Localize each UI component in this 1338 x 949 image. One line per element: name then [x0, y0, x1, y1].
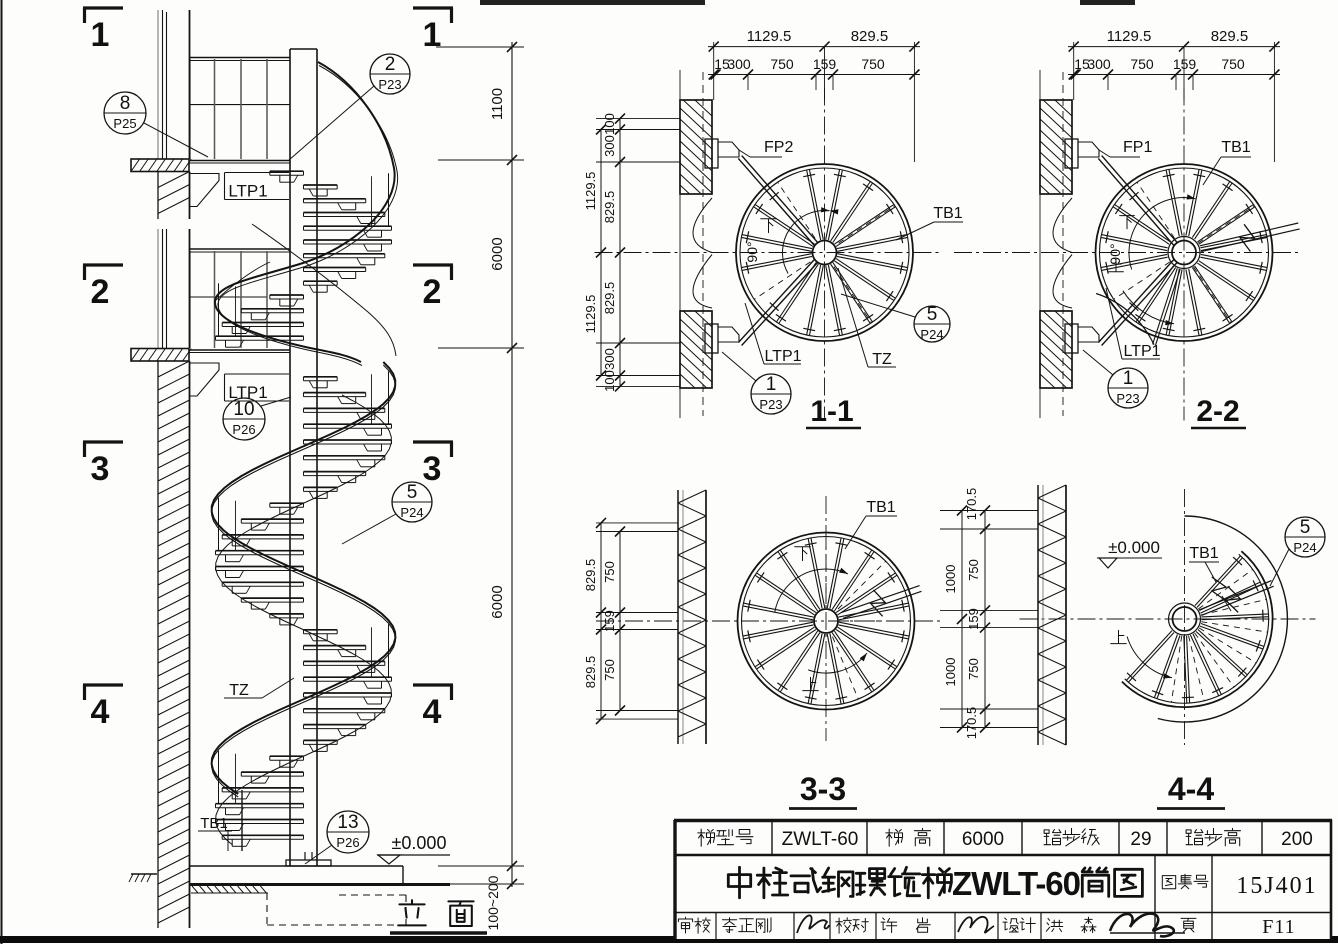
svg-text:750: 750 — [770, 56, 794, 72]
svg-text:F11: F11 — [1262, 916, 1295, 938]
svg-text:750: 750 — [1130, 56, 1154, 72]
svg-text:1: 1 — [766, 374, 777, 395]
svg-text:170.5: 170.5 — [964, 707, 979, 740]
svg-text:829.5: 829.5 — [583, 656, 598, 689]
svg-text:200: 200 — [1281, 829, 1313, 850]
svg-text:159: 159 — [602, 610, 617, 632]
svg-text:P23: P23 — [759, 397, 782, 412]
svg-text:170.5: 170.5 — [964, 488, 979, 521]
svg-text:FP2: FP2 — [764, 139, 793, 156]
svg-text:750: 750 — [602, 561, 617, 583]
svg-text:3-3: 3-3 — [800, 771, 846, 807]
svg-text:100~200: 100~200 — [485, 875, 501, 930]
svg-text:±0.000: ±0.000 — [1108, 538, 1160, 557]
svg-text:100: 100 — [602, 113, 617, 135]
svg-text:TB1: TB1 — [933, 205, 962, 222]
svg-text:TB1: TB1 — [200, 815, 228, 832]
svg-text:90°: 90° — [744, 241, 760, 262]
svg-text:13: 13 — [337, 812, 358, 833]
svg-text:1-1: 1-1 — [810, 395, 853, 428]
svg-text:829.5: 829.5 — [602, 191, 617, 224]
svg-text:5: 5 — [927, 304, 938, 325]
svg-text:159: 159 — [813, 56, 837, 72]
svg-text:1000: 1000 — [943, 565, 958, 594]
svg-text:3: 3 — [91, 450, 110, 488]
svg-text:1100: 1100 — [489, 88, 506, 120]
svg-text:FP1: FP1 — [1123, 139, 1152, 156]
svg-text:P26: P26 — [232, 422, 255, 437]
svg-text:1129.5: 1129.5 — [1107, 28, 1152, 45]
svg-text:P26: P26 — [336, 835, 359, 850]
svg-text:1: 1 — [423, 16, 442, 54]
svg-text:TZ: TZ — [229, 682, 249, 699]
svg-text:10: 10 — [233, 399, 254, 420]
svg-text:5: 5 — [1300, 517, 1311, 538]
svg-text:P25: P25 — [113, 116, 136, 131]
svg-text:750: 750 — [966, 559, 981, 581]
svg-text:6000: 6000 — [489, 585, 506, 618]
svg-text:5: 5 — [407, 482, 418, 503]
svg-text:1129.5: 1129.5 — [583, 172, 598, 211]
svg-text:8: 8 — [120, 93, 131, 114]
svg-text:300: 300 — [602, 135, 617, 157]
svg-text:2: 2 — [385, 54, 396, 75]
svg-text:P23: P23 — [1116, 391, 1139, 406]
svg-text:2: 2 — [423, 273, 442, 311]
svg-text:750: 750 — [966, 658, 981, 680]
svg-text:LTP1: LTP1 — [228, 182, 267, 201]
svg-text:300: 300 — [727, 56, 751, 72]
svg-text:P24: P24 — [1293, 540, 1316, 555]
svg-text:829.5: 829.5 — [1211, 28, 1249, 45]
svg-text:1129.5: 1129.5 — [747, 28, 792, 45]
svg-text:P24: P24 — [920, 327, 943, 342]
svg-text:LTP1: LTP1 — [764, 348, 801, 365]
svg-text:1: 1 — [91, 16, 110, 54]
svg-text:300: 300 — [602, 348, 617, 370]
svg-text:4-4: 4-4 — [1168, 771, 1214, 807]
svg-text:15J401: 15J401 — [1236, 873, 1317, 899]
svg-text:TB1: TB1 — [1189, 545, 1218, 562]
svg-text:TB1: TB1 — [866, 499, 895, 516]
svg-text:750: 750 — [861, 56, 885, 72]
svg-text:29: 29 — [1130, 829, 1151, 850]
svg-text:750: 750 — [1221, 56, 1245, 72]
svg-text:300: 300 — [1087, 56, 1111, 72]
svg-text:6000: 6000 — [962, 829, 1004, 850]
svg-text:159: 159 — [966, 608, 981, 630]
svg-text:LTP1: LTP1 — [1123, 343, 1160, 360]
svg-text:6000: 6000 — [489, 237, 506, 270]
svg-text:829.5: 829.5 — [602, 282, 617, 315]
svg-text:2-2: 2-2 — [1196, 395, 1239, 428]
svg-text:P23: P23 — [378, 77, 401, 92]
svg-text:829.5: 829.5 — [583, 559, 598, 592]
svg-text:100: 100 — [602, 370, 617, 392]
svg-text:TB1: TB1 — [1221, 139, 1250, 156]
svg-text:829.5: 829.5 — [851, 28, 889, 45]
svg-text:TZ: TZ — [872, 351, 892, 368]
svg-text:4: 4 — [423, 693, 442, 731]
svg-text:1: 1 — [1123, 368, 1134, 389]
svg-text:1129.5: 1129.5 — [583, 295, 598, 334]
svg-text:ZWLT-60: ZWLT-60 — [782, 829, 859, 850]
svg-text:750: 750 — [602, 659, 617, 681]
svg-text:159: 159 — [1173, 56, 1197, 72]
svg-text:4: 4 — [91, 693, 110, 731]
svg-text:ZWLT-60: ZWLT-60 — [952, 865, 1080, 902]
svg-text:1000: 1000 — [943, 658, 958, 687]
svg-text:90°: 90° — [1107, 243, 1123, 264]
svg-text:3: 3 — [423, 450, 442, 488]
svg-text:±0.000: ±0.000 — [392, 833, 447, 853]
svg-text:2: 2 — [91, 273, 110, 311]
svg-text:P24: P24 — [400, 505, 423, 520]
